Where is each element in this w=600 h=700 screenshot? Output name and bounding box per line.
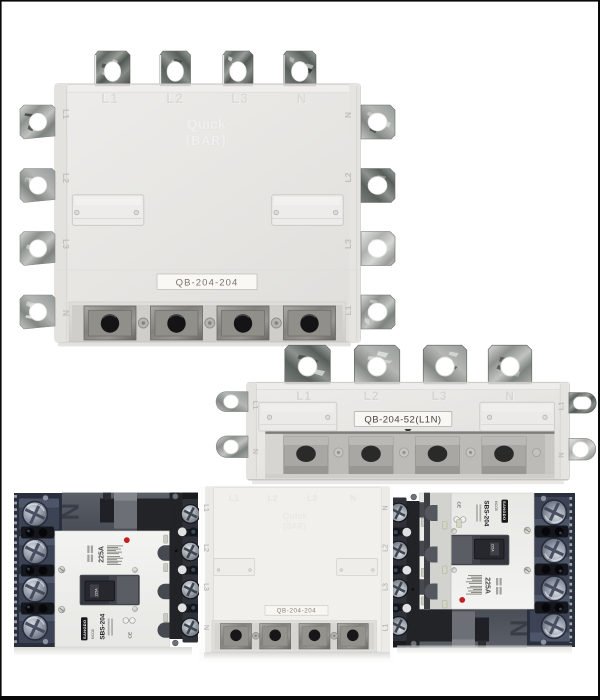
svg-text:L3: L3 <box>432 389 448 403</box>
svg-text:L2: L2 <box>268 493 278 503</box>
svg-text:L3: L3 <box>343 239 353 249</box>
svg-text:L2: L2 <box>61 173 71 183</box>
svg-text:L1: L1 <box>557 402 566 411</box>
svg-text:L1: L1 <box>61 109 71 119</box>
svg-text:[BAR]: [BAR] <box>186 134 226 148</box>
svg-text:L1: L1 <box>101 91 119 106</box>
svg-text:L3: L3 <box>383 583 390 591</box>
svg-text:Quick: Quick <box>282 511 308 521</box>
svg-text:QB-204-204: QB-204-204 <box>176 278 239 289</box>
svg-text:N: N <box>557 452 566 457</box>
svg-text:L1: L1 <box>383 624 390 632</box>
svg-text:N: N <box>343 112 353 118</box>
svg-text:QB-204-52(L1N): QB-204-52(L1N) <box>364 415 441 426</box>
svg-text:L3: L3 <box>61 239 71 249</box>
svg-text:L3: L3 <box>307 493 317 503</box>
svg-text:L1: L1 <box>229 493 239 503</box>
svg-text:L1: L1 <box>296 389 312 403</box>
svg-text:N: N <box>505 389 514 403</box>
svg-text:L1: L1 <box>202 504 209 512</box>
svg-text:N: N <box>350 493 356 503</box>
svg-text:L3: L3 <box>202 583 209 591</box>
svg-text:N: N <box>383 505 390 510</box>
svg-text:L2: L2 <box>383 544 390 552</box>
svg-text:Quick: Quick <box>187 116 226 132</box>
svg-text:QB-204-204: QB-204-204 <box>277 608 317 615</box>
svg-text:N: N <box>297 91 308 106</box>
svg-text:N: N <box>202 625 209 630</box>
svg-text:L2: L2 <box>202 544 209 552</box>
svg-text:N: N <box>251 449 260 454</box>
svg-text:L2: L2 <box>364 389 380 403</box>
svg-text:L3: L3 <box>231 91 249 106</box>
svg-text:[BAR]: [BAR] <box>283 522 306 531</box>
svg-text:L2: L2 <box>166 91 184 106</box>
svg-text:L2: L2 <box>343 172 353 182</box>
